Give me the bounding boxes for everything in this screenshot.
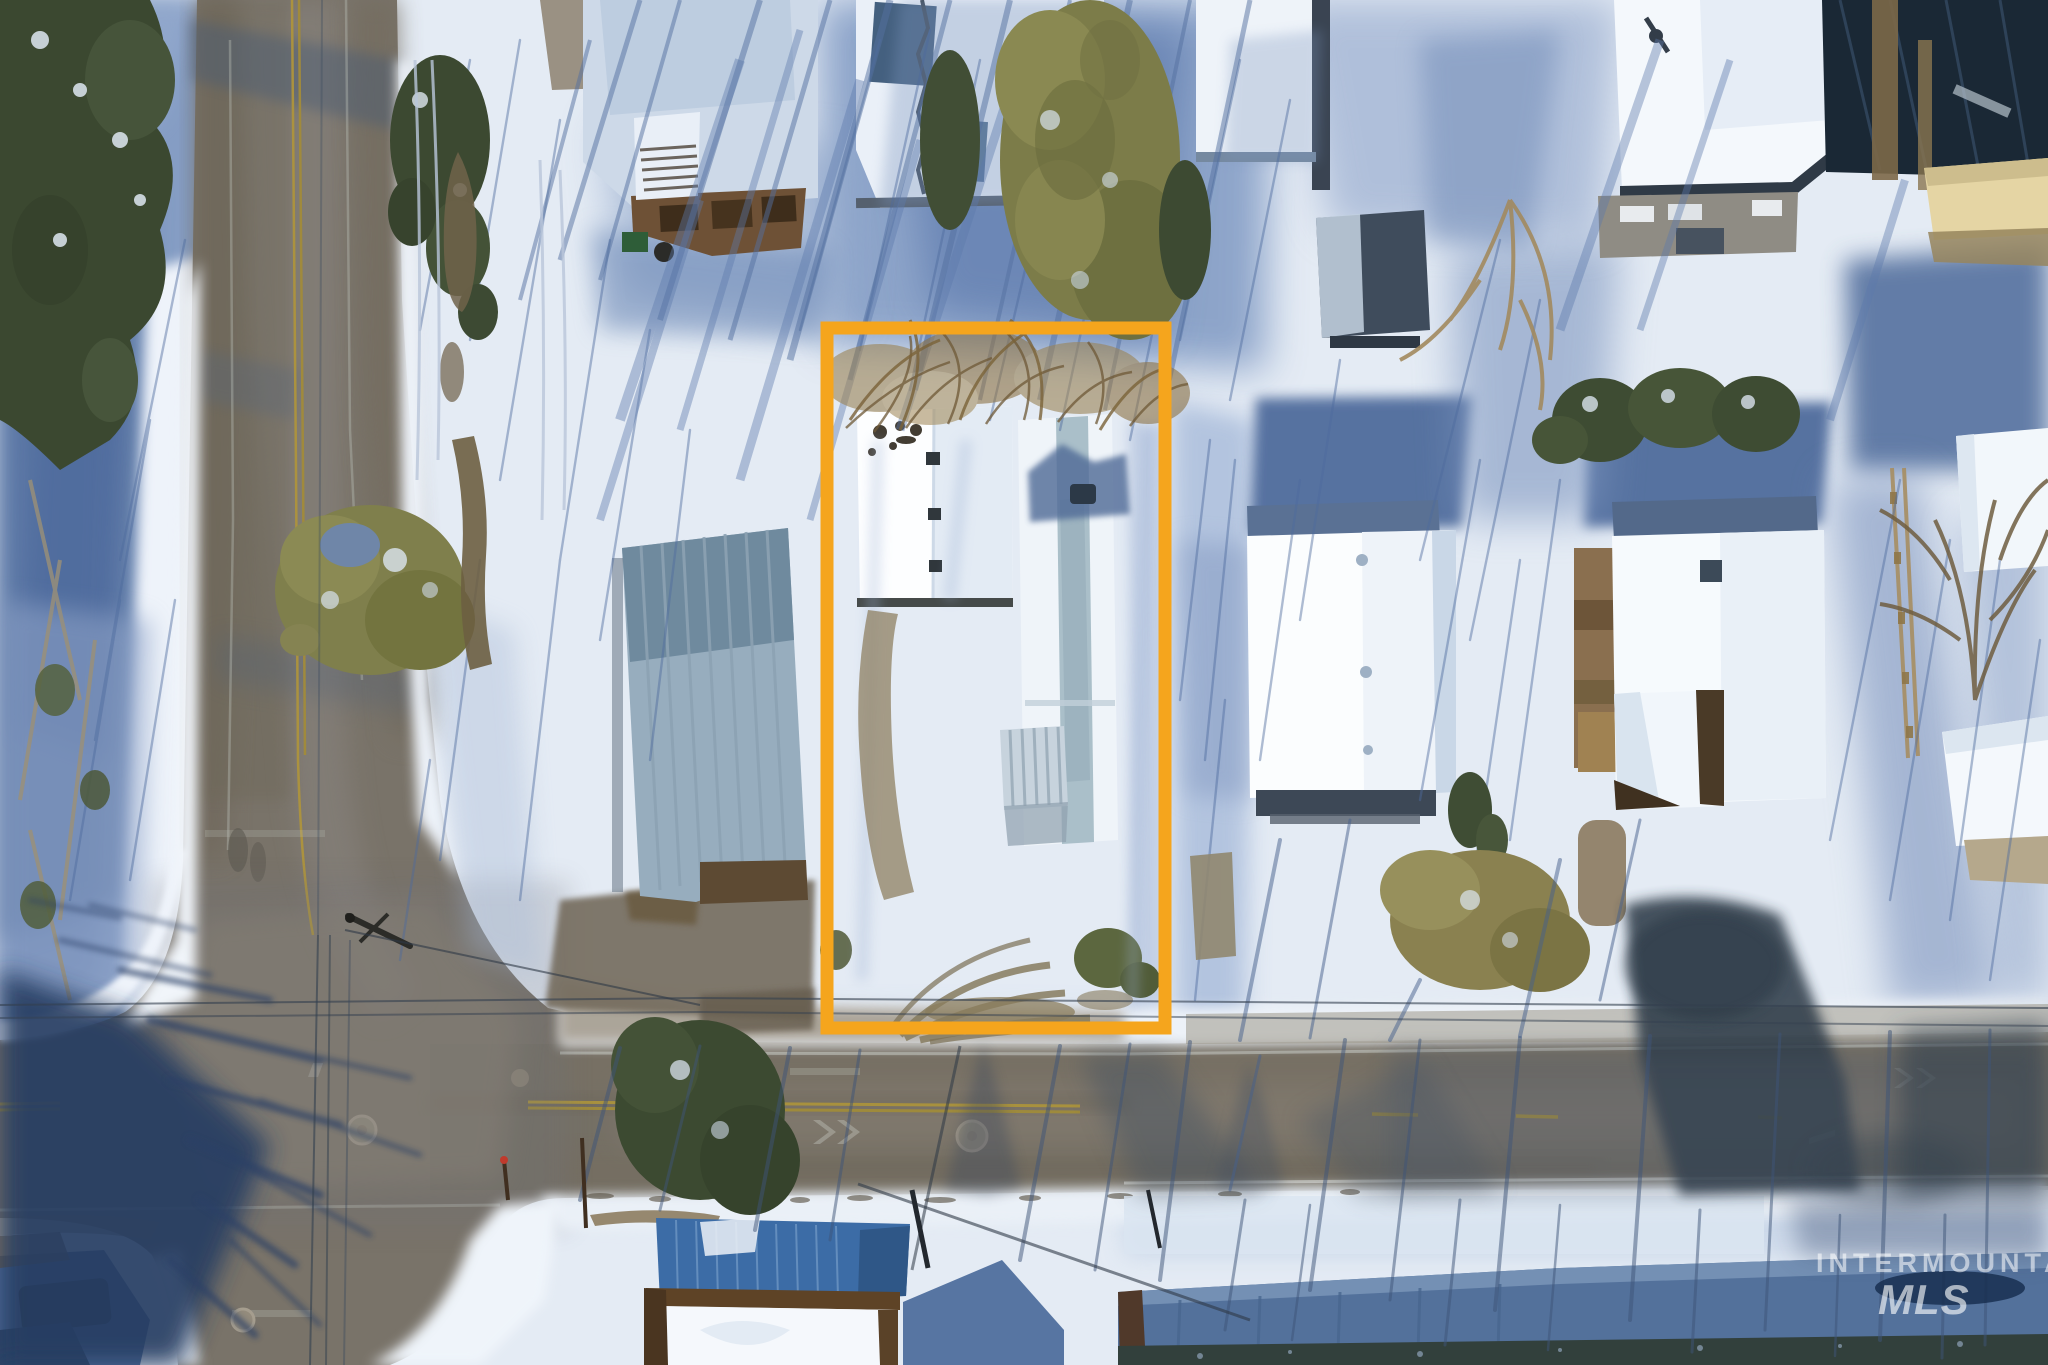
svg-text:INTERMOUNTAIN: INTERMOUNTAIN bbox=[1816, 1248, 2048, 1278]
svg-text:MLS: MLS bbox=[1878, 1276, 1970, 1323]
